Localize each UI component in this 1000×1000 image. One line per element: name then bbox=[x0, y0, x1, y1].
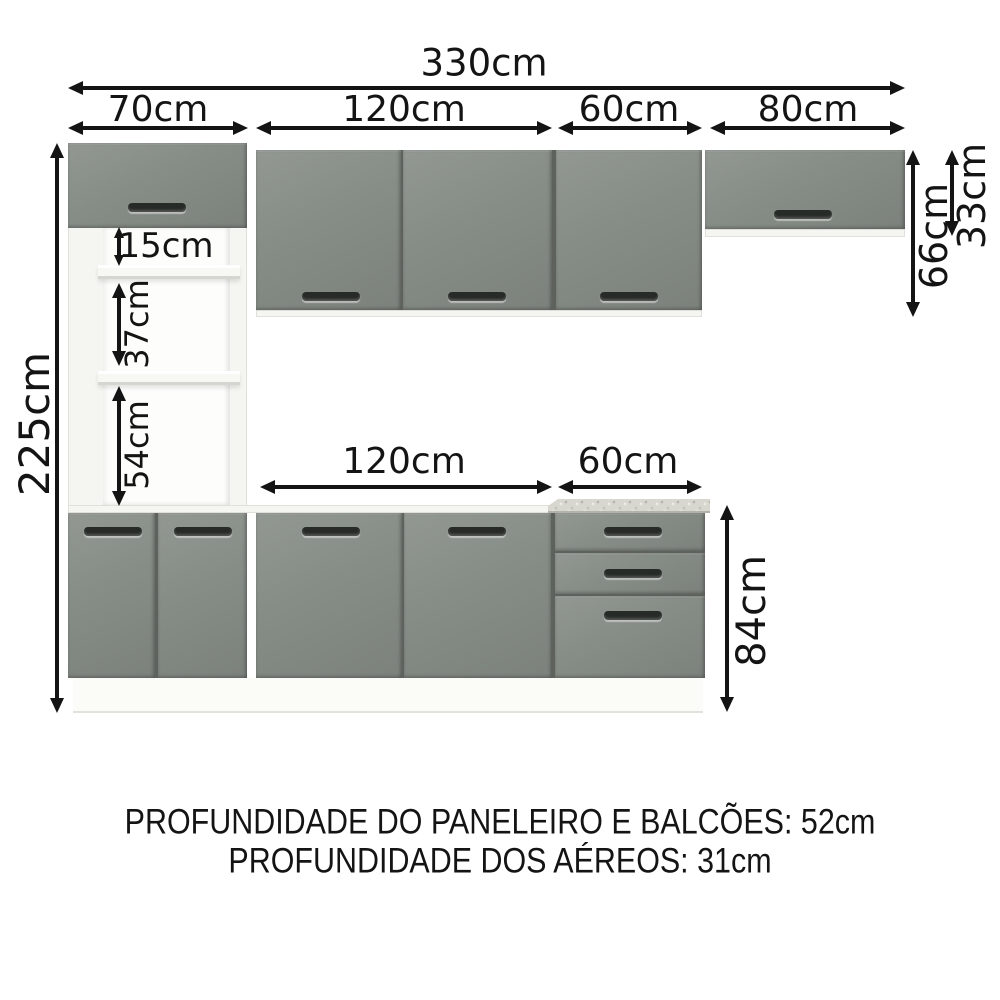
base-cabinet-seam bbox=[551, 513, 555, 678]
label-height-225: 225cm bbox=[14, 352, 56, 496]
depth-note-line1: PROFUNDIDADE DO PANELEIRO E BALCÕES: 52c… bbox=[125, 805, 876, 840]
pantry-base-left-door bbox=[68, 513, 155, 678]
pantry-top-door-handle-icon bbox=[128, 203, 186, 212]
base-120-left-door bbox=[256, 513, 402, 678]
label-width-60-top: 60cm bbox=[579, 92, 680, 128]
drawer-3-handle-icon bbox=[604, 611, 662, 620]
drawer-2-handle-icon bbox=[604, 569, 662, 578]
pantry-shelf-upper bbox=[98, 265, 240, 279]
label-width-120-top: 120cm bbox=[342, 92, 466, 128]
label-width-70: 70cm bbox=[108, 92, 209, 128]
pantry-base-right-handle-icon bbox=[174, 527, 232, 536]
kitchen-dimension-diagram: 330cm 70cm 120cm 60cm 80cm 225cm 15cm 37… bbox=[0, 0, 1000, 1000]
upper-120-left-handle-icon bbox=[302, 292, 360, 301]
label-gap-54: 54cm bbox=[121, 400, 153, 489]
upper-120-left-door bbox=[256, 150, 401, 310]
upper-60-handle-icon bbox=[600, 292, 658, 301]
label-gap-15: 15cm bbox=[118, 229, 213, 263]
drawer-3-front bbox=[555, 596, 705, 678]
label-total-width: 330cm bbox=[420, 45, 547, 82]
base-120-right-handle-icon bbox=[448, 527, 506, 536]
pantry-base-left-handle-icon bbox=[84, 527, 142, 536]
label-width-60-base: 60cm bbox=[578, 444, 679, 480]
upper-80-handle-icon bbox=[774, 210, 832, 219]
base-120-left-handle-icon bbox=[302, 527, 360, 536]
label-height-33: 33cm bbox=[953, 143, 991, 249]
base-top-panel bbox=[68, 505, 554, 513]
pantry-shelf-lower bbox=[98, 371, 240, 385]
upper-120-right-door bbox=[403, 150, 552, 310]
label-gap-37: 37cm bbox=[121, 279, 153, 368]
label-width-80: 80cm bbox=[758, 92, 859, 128]
label-height-66: 66cm bbox=[915, 183, 953, 289]
label-width-120-base: 120cm bbox=[342, 444, 466, 480]
label-height-84: 84cm bbox=[732, 555, 772, 667]
upper-120-right-handle-icon bbox=[448, 292, 506, 301]
pantry-top-door bbox=[68, 143, 247, 228]
drawer-1-handle-icon bbox=[604, 527, 662, 536]
upper-80-bottom-panel bbox=[705, 229, 905, 237]
base-120-right-door bbox=[404, 513, 552, 678]
upper-60-door bbox=[556, 150, 702, 310]
pantry-base-right-door bbox=[158, 513, 247, 678]
upper-run-bottom-panel bbox=[256, 310, 702, 317]
depth-note-line2: PROFUNDIDADE DOS AÉREOS: 31cm bbox=[228, 844, 771, 879]
countertop-granite bbox=[548, 499, 710, 513]
base-plinth bbox=[73, 678, 703, 713]
